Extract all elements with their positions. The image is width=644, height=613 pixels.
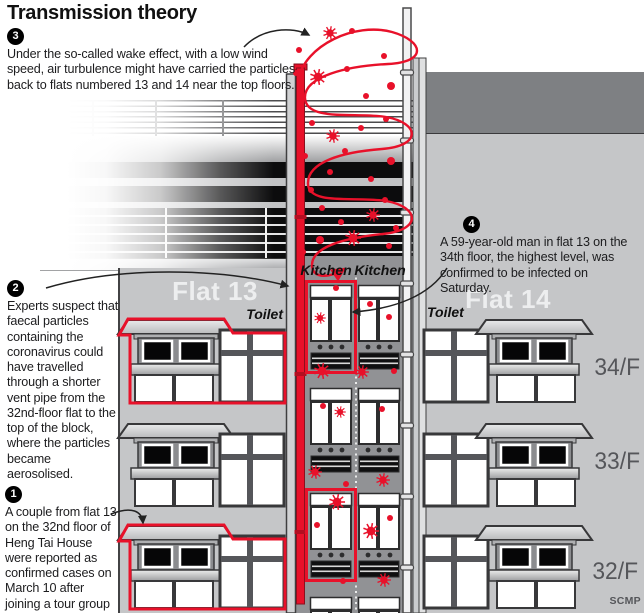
flat13-label: Flat 13 xyxy=(150,276,280,307)
note-3-text: Under the so-called wake effect, with a … xyxy=(7,47,299,93)
kitchen-windows xyxy=(307,282,400,613)
note-4: 4 A 59-year-old man in flat 13 on the 34… xyxy=(440,216,636,296)
kitchen-label-right: Kitchen xyxy=(354,262,406,278)
note-1-text: A couple from flat 13 on the 32nd floor … xyxy=(5,505,121,613)
note-2-badge: 2 xyxy=(7,280,24,297)
flat13-units xyxy=(118,319,285,609)
note-2-text: Experts suspect that faecal particles co… xyxy=(7,299,120,482)
white-vent-pipe xyxy=(401,8,414,613)
note-3-badge: 3 xyxy=(7,28,24,45)
kitchen-label-left: Kitchen xyxy=(300,262,352,278)
page-title: Transmission theory xyxy=(7,2,197,25)
flat14-units xyxy=(424,320,592,608)
note-1-badge: 1 xyxy=(5,486,22,503)
note-3: 3 Under the so-called wake effect, with … xyxy=(7,28,299,93)
floor-label-32f: 32/F xyxy=(587,558,638,586)
toilet-label-right: Toilet xyxy=(427,304,464,320)
floor-label-33f: 33/F xyxy=(589,448,640,476)
toilet-label-left: Toilet xyxy=(228,306,283,322)
wake-turbulence-spiral xyxy=(298,30,417,276)
note-4-text: A 59-year-old man in flat 13 on the 34th… xyxy=(440,235,636,296)
credit-scmp: SCMP xyxy=(609,595,641,607)
note-4-badge: 4 xyxy=(463,216,480,233)
floor-label-34f: 34/F xyxy=(589,354,640,382)
infographic-canvas: Transmission theory Flat 13 Flat 14 Toil… xyxy=(0,0,644,613)
note-2: 2 Experts suspect that faecal particles … xyxy=(7,280,120,482)
note-1: 1 A couple from flat 13 on the 32nd floo… xyxy=(5,486,121,613)
